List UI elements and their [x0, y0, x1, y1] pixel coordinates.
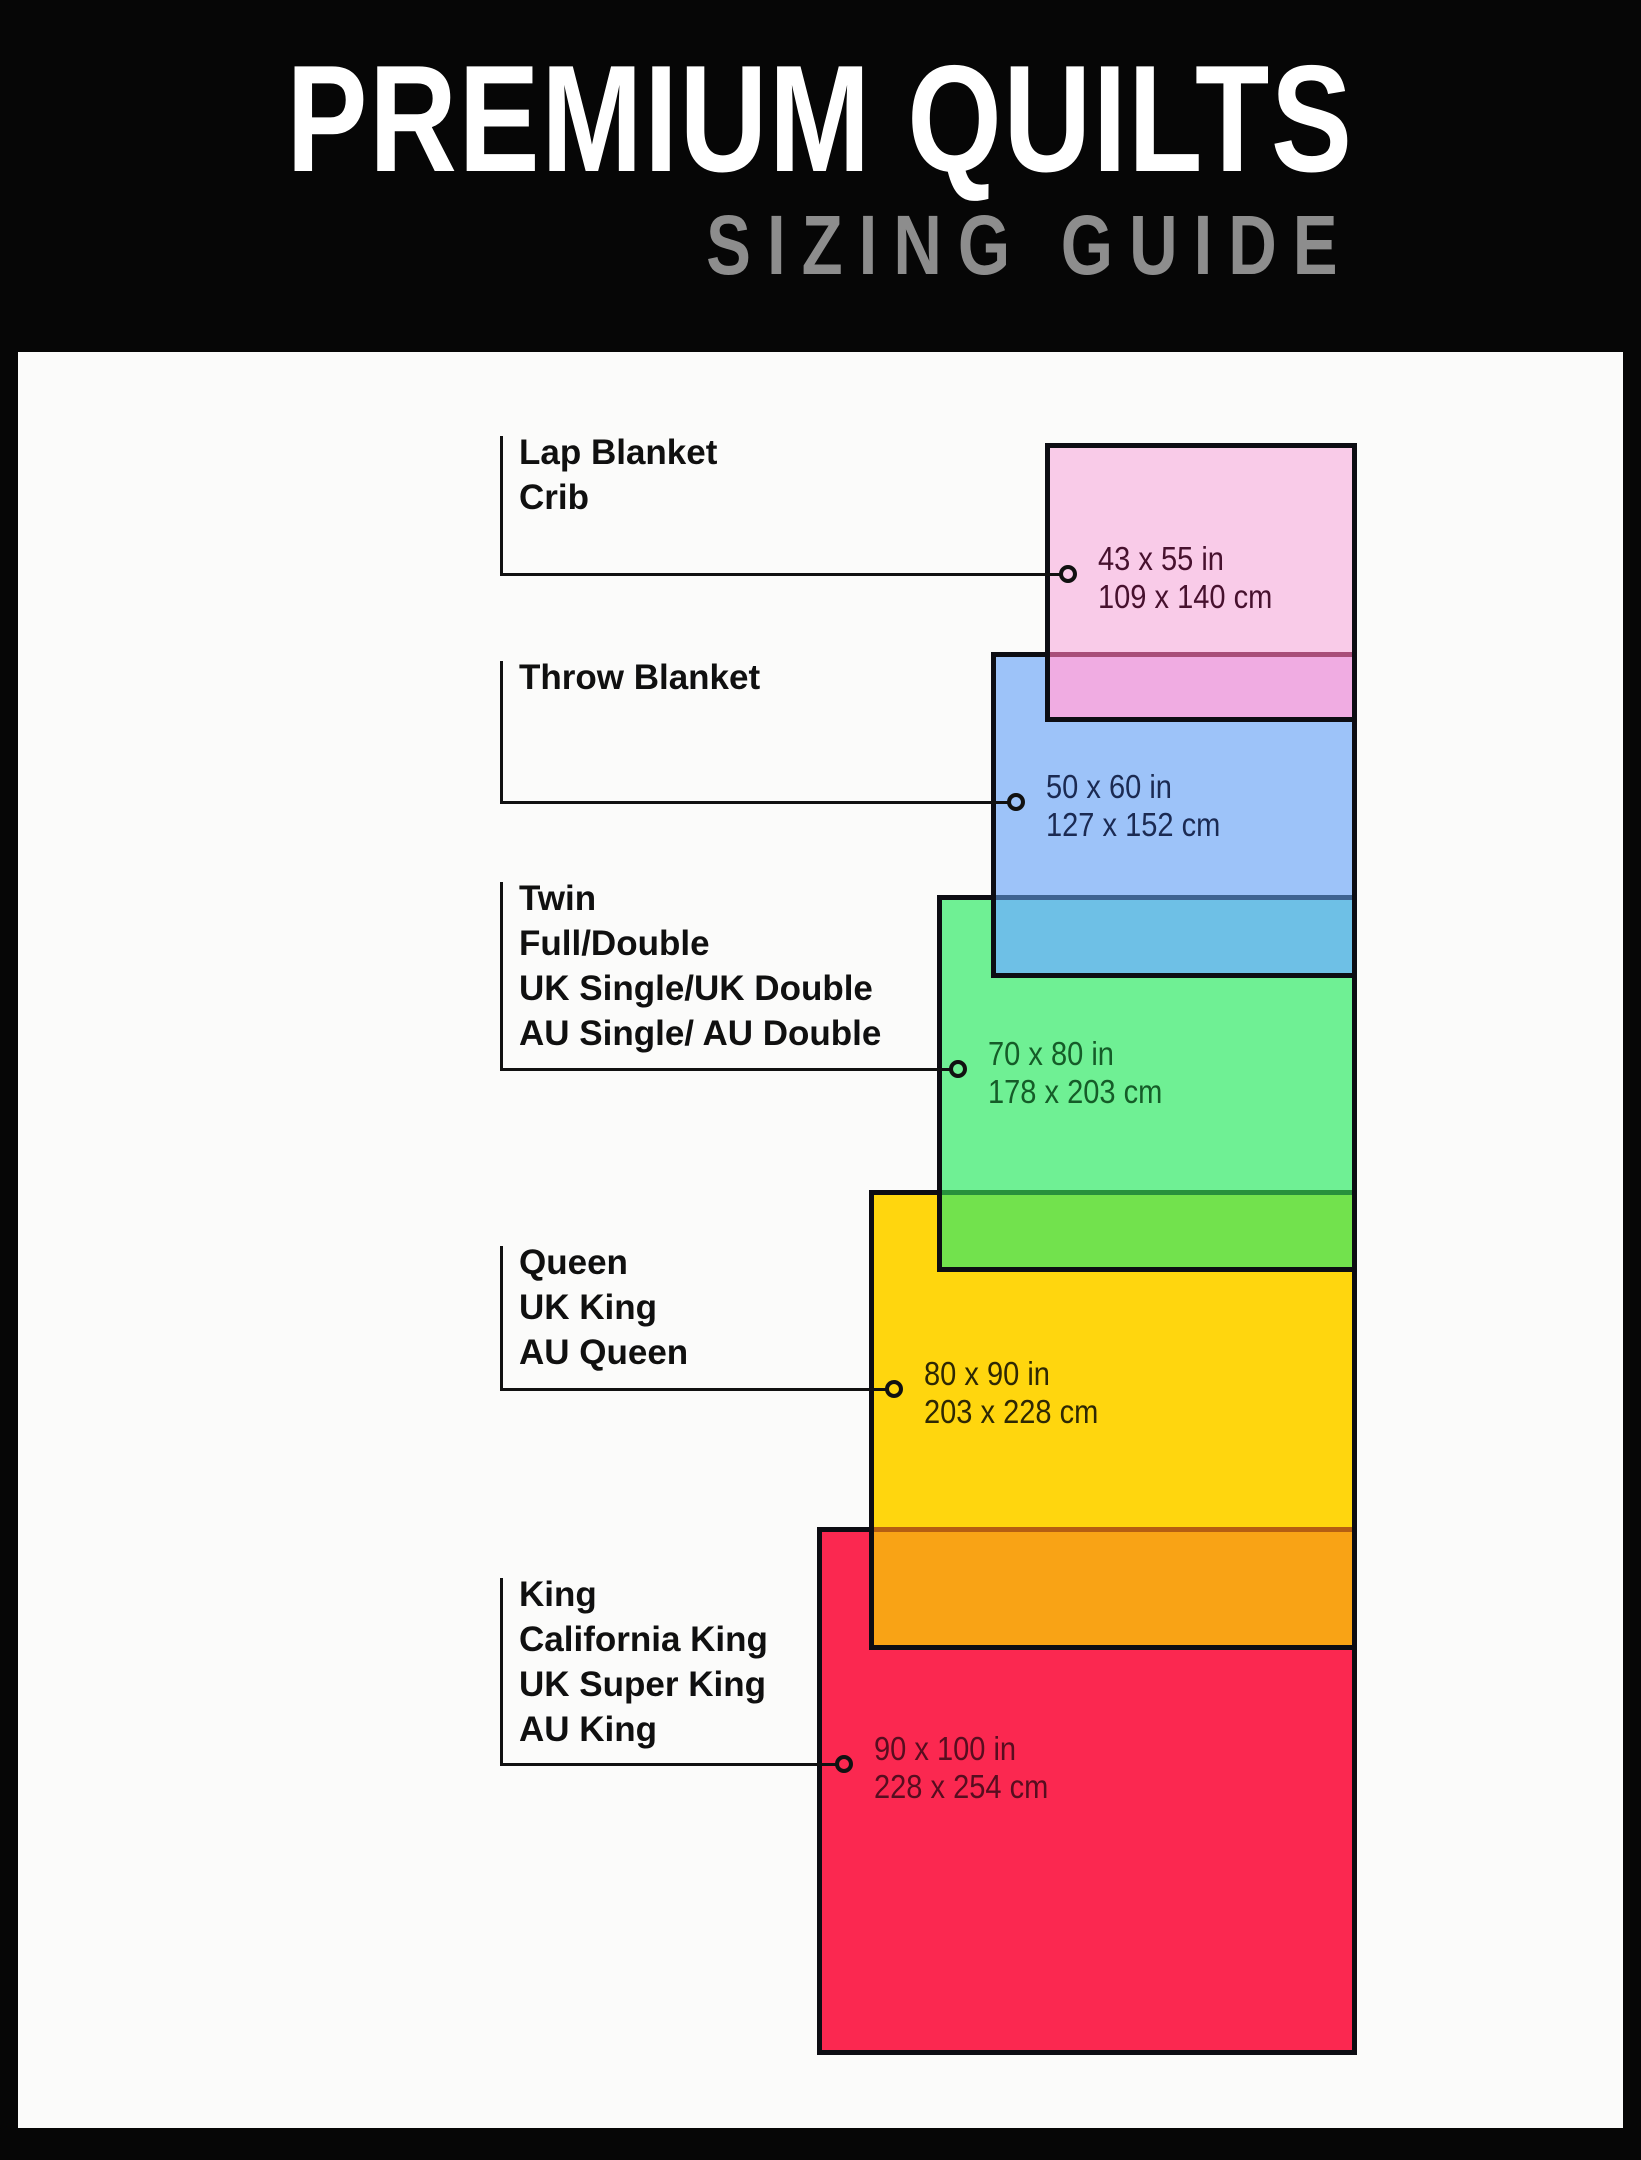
quilt-rect-lap-crib: 43 x 55 in109 x 140 cm [1045, 443, 1357, 722]
header-inner: PREMIUM QUILTS SIZING GUIDE [287, 0, 1354, 287]
leader-line-horizontal-throw [500, 801, 1009, 804]
size-centimeters: 127 x 152 cm [1046, 806, 1220, 844]
category-label-line: AU King [519, 1707, 768, 1752]
category-label-line: King [519, 1572, 768, 1617]
size-centimeters: 228 x 254 cm [874, 1768, 1048, 1806]
leader-line-horizontal-queen [500, 1388, 887, 1391]
category-label-throw: Throw Blanket [519, 655, 760, 700]
category-label-line: Queen [519, 1240, 688, 1285]
size-inches: 80 x 90 in [924, 1355, 1098, 1393]
leader-line-vertical-queen [500, 1246, 503, 1390]
ring-marker-king [835, 1755, 853, 1773]
ring-marker-lap-crib [1059, 565, 1077, 583]
leader-line-vertical-lap-crib [500, 436, 503, 575]
size-centimeters: 109 x 140 cm [1098, 578, 1272, 616]
category-label-twin-full-double: TwinFull/DoubleUK Single/UK DoubleAU Sin… [519, 876, 881, 1056]
ring-marker-throw [1007, 793, 1025, 811]
category-label-line: Crib [519, 475, 717, 520]
leader-line-vertical-twin-full-double [500, 882, 503, 1070]
header: PREMIUM QUILTS SIZING GUIDE [0, 0, 1641, 352]
overlap-strip-throw [996, 895, 1352, 973]
leader-line-vertical-king [500, 1578, 503, 1765]
overlap-strip-queen [874, 1527, 1352, 1645]
page-title: PREMIUM QUILTS [287, 42, 1354, 197]
category-label-queen: QueenUK KingAU Queen [519, 1240, 688, 1375]
leader-line-horizontal-twin-full-double [500, 1068, 951, 1071]
leader-line-horizontal-lap-crib [500, 573, 1061, 576]
category-label-lap-crib: Lap BlanketCrib [519, 430, 717, 520]
size-dimensions-queen: 80 x 90 in203 x 228 cm [924, 1355, 1098, 1431]
category-label-line: UK King [519, 1285, 688, 1330]
size-dimensions-lap-crib: 43 x 55 in109 x 140 cm [1098, 540, 1272, 616]
size-dimensions-throw: 50 x 60 in127 x 152 cm [1046, 768, 1220, 844]
size-centimeters: 203 x 228 cm [924, 1393, 1098, 1431]
category-label-line: Lap Blanket [519, 430, 717, 475]
size-inches: 90 x 100 in [874, 1730, 1048, 1768]
category-label-line: Full/Double [519, 921, 881, 966]
overlap-strip-twin-full-double [942, 1190, 1352, 1267]
leader-line-vertical-throw [500, 661, 503, 803]
ring-marker-twin-full-double [949, 1060, 967, 1078]
category-label-line: AU Queen [519, 1330, 688, 1375]
size-centimeters: 178 x 203 cm [988, 1073, 1162, 1111]
infographic-canvas: PREMIUM QUILTS SIZING GUIDE 43 x 55 in10… [0, 0, 1641, 2160]
ring-marker-queen [885, 1380, 903, 1398]
category-label-line: Throw Blanket [519, 655, 760, 700]
category-label-line: California King [519, 1617, 768, 1662]
size-inches: 50 x 60 in [1046, 768, 1220, 806]
category-label-king: KingCalifornia KingUK Super KingAU King [519, 1572, 768, 1752]
category-label-line: UK Single/UK Double [519, 966, 881, 1011]
size-inches: 43 x 55 in [1098, 540, 1272, 578]
category-label-line: Twin [519, 876, 881, 921]
overlap-strip-lap-crib [1050, 652, 1352, 717]
page-subtitle: SIZING GUIDE [287, 203, 1354, 287]
category-label-line: UK Super King [519, 1662, 768, 1707]
category-label-line: AU Single/ AU Double [519, 1011, 881, 1056]
size-dimensions-twin-full-double: 70 x 80 in178 x 203 cm [988, 1035, 1162, 1111]
leader-line-horizontal-king [500, 1763, 837, 1766]
size-inches: 70 x 80 in [988, 1035, 1162, 1073]
size-dimensions-king: 90 x 100 in228 x 254 cm [874, 1730, 1048, 1806]
